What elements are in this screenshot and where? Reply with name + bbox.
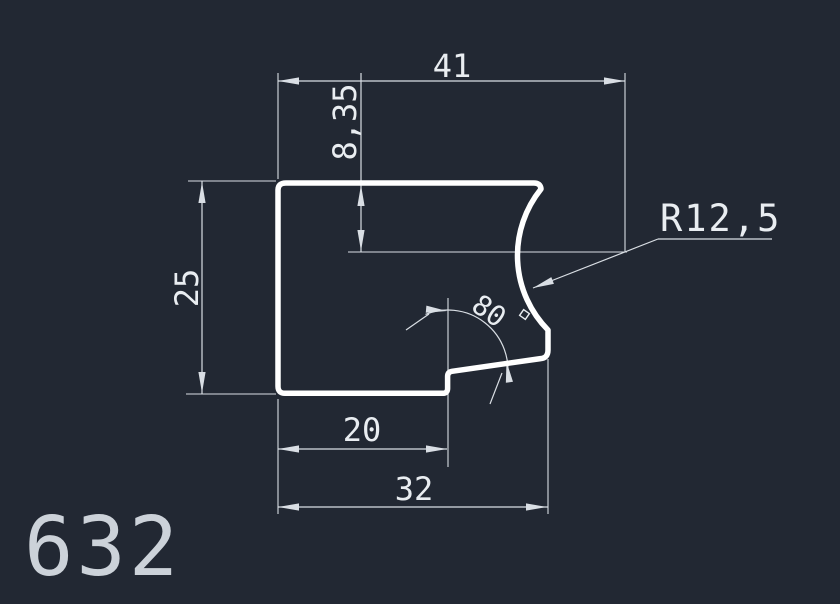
angle-tail: [490, 373, 502, 404]
dim-total-width-label: 41: [433, 47, 472, 85]
arrowhead-icon: [278, 445, 299, 452]
dim-arc-center-offset: 8,35: [326, 73, 627, 252]
dim-radius-label: R12,5: [660, 197, 781, 240]
arrowhead-icon: [526, 503, 547, 510]
arrowhead-icon: [604, 77, 625, 84]
arrowhead-icon: [278, 77, 299, 84]
dim-arc-center-offset-label: 8,35: [326, 83, 364, 160]
arrowhead-icon: [198, 372, 205, 393]
arrowhead-icon: [532, 277, 554, 291]
dim-height-label: 25: [168, 269, 206, 308]
dim-bottom-width-label: 32: [395, 470, 434, 508]
part-number-label: 632: [24, 500, 181, 595]
degree-symbol-icon: [520, 310, 530, 320]
dim-angle-label: 80: [466, 288, 513, 334]
angle-tail: [406, 314, 429, 330]
cad-canvas: 41 8,35 25 20: [0, 0, 840, 600]
dim-angle: 80: [406, 288, 529, 404]
arrowhead-icon: [357, 230, 364, 251]
dim-height: 25: [168, 181, 276, 394]
dimension-layer: 41 8,35 25 20: [168, 47, 781, 514]
dim-step-width-label: 20: [343, 411, 382, 449]
dim-radius: R12,5: [532, 197, 782, 291]
arrowhead-icon: [426, 445, 447, 452]
arrowhead-icon: [357, 185, 364, 206]
arrowhead-icon: [278, 503, 299, 510]
arrowhead-icon: [198, 182, 205, 203]
profile-outline: [278, 183, 548, 393]
